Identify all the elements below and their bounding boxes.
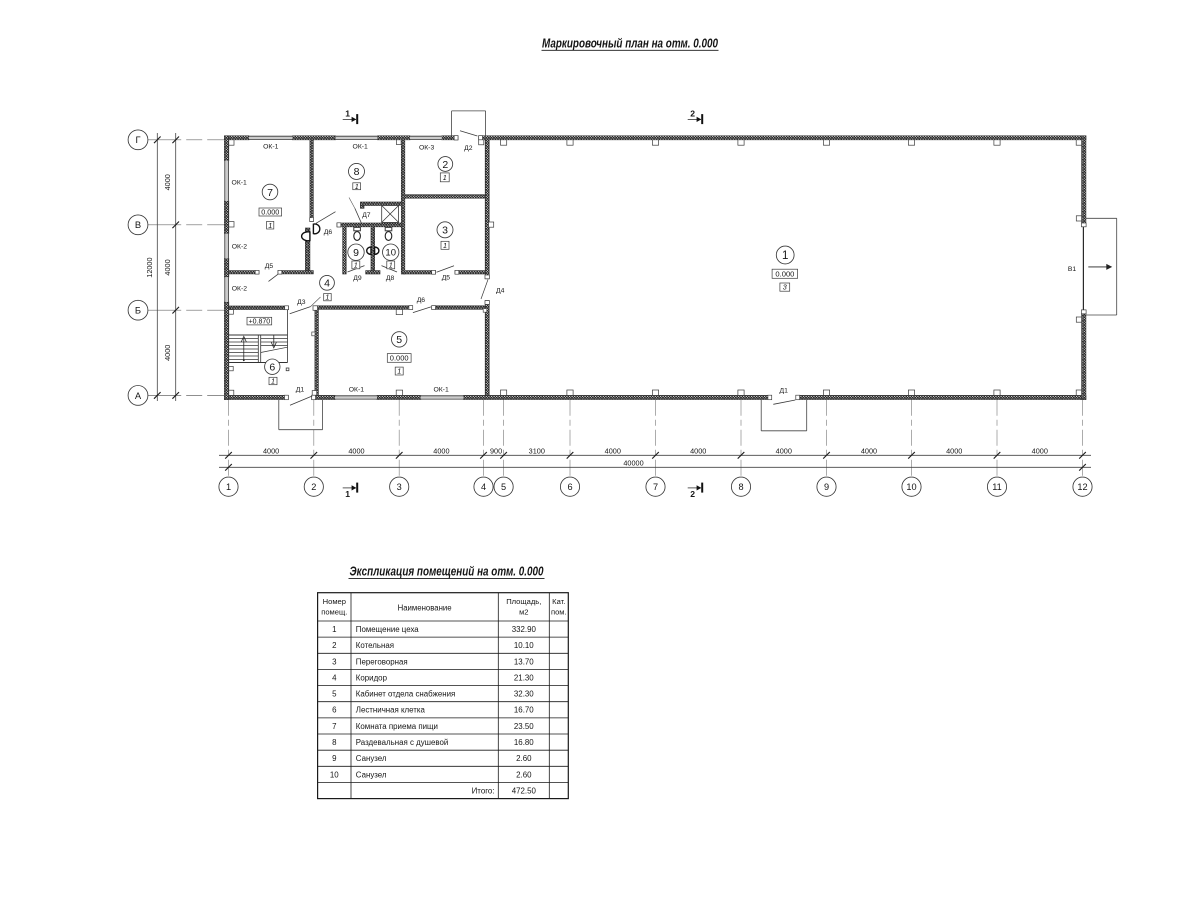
svg-text:Санузел: Санузел <box>356 770 387 779</box>
svg-text:5: 5 <box>332 690 337 699</box>
svg-text:7: 7 <box>267 187 273 199</box>
svg-text:2: 2 <box>690 109 695 119</box>
svg-text:1: 1 <box>389 261 393 270</box>
svg-text:Б: Б <box>135 305 141 316</box>
svg-text:1: 1 <box>332 625 336 634</box>
svg-text:4000: 4000 <box>348 447 364 456</box>
svg-text:1: 1 <box>268 221 272 230</box>
svg-text:2: 2 <box>690 489 695 499</box>
svg-text:Лестничная клетка: Лестничная клетка <box>356 706 426 715</box>
svg-text:Санузел: Санузел <box>356 754 387 763</box>
svg-text:10: 10 <box>330 770 339 779</box>
svg-text:9: 9 <box>824 482 829 492</box>
svg-text:+0.870: +0.870 <box>249 319 271 326</box>
svg-text:7: 7 <box>332 722 336 731</box>
svg-text:Маркировочный план на отм. 0.0: Маркировочный план на отм. 0.000 <box>542 37 718 51</box>
svg-text:Д5: Д5 <box>265 263 274 270</box>
svg-text:1: 1 <box>345 489 350 499</box>
svg-text:4000: 4000 <box>163 174 172 190</box>
svg-text:332.90: 332.90 <box>512 625 537 634</box>
svg-text:16.70: 16.70 <box>514 706 534 715</box>
svg-text:Переговорная: Переговорная <box>356 657 408 666</box>
svg-text:Котельная: Котельная <box>356 641 394 650</box>
svg-text:2: 2 <box>332 641 336 650</box>
svg-text:7: 7 <box>653 482 658 492</box>
svg-text:4000: 4000 <box>1032 447 1048 456</box>
svg-text:ОК-1: ОК-1 <box>263 144 279 151</box>
svg-text:10.10: 10.10 <box>514 641 534 650</box>
svg-text:помещ.: помещ. <box>321 608 347 617</box>
svg-text:9: 9 <box>353 247 359 259</box>
svg-text:Комната приема пищи: Комната приема пищи <box>356 722 438 731</box>
svg-text:21.30: 21.30 <box>514 673 534 682</box>
svg-text:0.000: 0.000 <box>775 269 794 278</box>
svg-text:Д1: Д1 <box>780 387 789 394</box>
svg-text:2: 2 <box>311 482 316 492</box>
svg-text:Наименование: Наименование <box>398 603 452 612</box>
svg-text:9: 9 <box>332 754 337 763</box>
svg-text:12000: 12000 <box>145 257 154 277</box>
svg-text:1: 1 <box>345 109 350 119</box>
svg-text:6: 6 <box>332 706 337 715</box>
svg-text:м2: м2 <box>519 608 528 617</box>
svg-text:4: 4 <box>481 482 486 492</box>
svg-text:Коридор: Коридор <box>356 673 388 682</box>
svg-text:Д5: Д5 <box>442 275 451 282</box>
svg-text:1: 1 <box>782 250 788 262</box>
svg-text:Номер: Номер <box>323 597 346 606</box>
svg-text:В1: В1 <box>1068 266 1077 273</box>
svg-text:Д7: Д7 <box>362 212 371 219</box>
svg-text:Д2: Д2 <box>464 145 473 152</box>
svg-text:4000: 4000 <box>690 447 706 456</box>
svg-text:1: 1 <box>354 261 358 270</box>
svg-text:Итого:: Итого: <box>472 786 495 795</box>
svg-text:6: 6 <box>269 362 275 374</box>
svg-text:4: 4 <box>332 673 337 682</box>
svg-text:900: 900 <box>490 447 502 456</box>
svg-text:12: 12 <box>1077 482 1087 492</box>
svg-text:6: 6 <box>567 482 572 492</box>
svg-text:Помещение цеха: Помещение цеха <box>356 625 420 634</box>
svg-text:А: А <box>135 390 142 401</box>
svg-text:32.30: 32.30 <box>514 690 534 699</box>
svg-text:Д8: Д8 <box>386 275 395 282</box>
svg-text:13.70: 13.70 <box>514 657 534 666</box>
svg-text:4000: 4000 <box>946 447 962 456</box>
svg-text:2.60: 2.60 <box>516 754 532 763</box>
svg-text:ОК-1: ОК-1 <box>433 386 449 393</box>
svg-text:3: 3 <box>442 225 448 237</box>
svg-text:ОК-1: ОК-1 <box>232 180 248 187</box>
svg-text:4: 4 <box>324 278 330 290</box>
svg-text:1: 1 <box>271 377 275 386</box>
svg-text:0.000: 0.000 <box>261 208 279 217</box>
svg-text:2.60: 2.60 <box>516 770 532 779</box>
svg-text:23.50: 23.50 <box>514 722 534 731</box>
svg-text:1: 1 <box>443 241 447 250</box>
svg-text:472.50: 472.50 <box>512 786 537 795</box>
svg-text:1: 1 <box>397 367 401 376</box>
svg-text:Д4: Д4 <box>496 288 505 295</box>
svg-text:8: 8 <box>738 482 743 492</box>
svg-text:1: 1 <box>355 182 359 191</box>
svg-text:ОК-3: ОК-3 <box>419 144 435 151</box>
svg-text:Д6: Д6 <box>324 229 333 236</box>
svg-text:3: 3 <box>332 657 337 666</box>
svg-text:10: 10 <box>385 248 396 259</box>
svg-text:ОК-2: ОК-2 <box>232 286 248 293</box>
svg-text:ОК-1: ОК-1 <box>349 386 365 393</box>
svg-text:пом.: пом. <box>551 608 567 617</box>
svg-text:ОК-1: ОК-1 <box>353 144 369 151</box>
svg-text:0.000: 0.000 <box>390 354 409 363</box>
svg-text:40000: 40000 <box>623 459 643 468</box>
svg-text:ОК-2: ОК-2 <box>232 244 248 251</box>
svg-text:4000: 4000 <box>263 447 279 456</box>
svg-text:Д3: Д3 <box>297 299 306 306</box>
svg-text:Г: Г <box>135 134 140 145</box>
svg-text:4000: 4000 <box>861 447 877 456</box>
svg-text:4000: 4000 <box>163 345 172 361</box>
svg-text:1: 1 <box>325 293 329 302</box>
svg-text:Д9: Д9 <box>353 275 362 282</box>
svg-text:3: 3 <box>397 482 402 492</box>
svg-text:4000: 4000 <box>433 447 449 456</box>
svg-text:3100: 3100 <box>529 447 545 456</box>
svg-text:Раздевальная с душевой: Раздевальная с душевой <box>356 738 448 747</box>
svg-text:Кабинет отдела снабжения: Кабинет отдела снабжения <box>356 690 456 699</box>
svg-text:10: 10 <box>906 482 916 492</box>
svg-text:Площадь,: Площадь, <box>506 597 541 606</box>
svg-text:5: 5 <box>396 334 402 346</box>
svg-text:4000: 4000 <box>163 259 172 275</box>
svg-text:3: 3 <box>783 283 787 292</box>
svg-text:2: 2 <box>442 159 448 171</box>
svg-text:Экспликация помещений на отм.: Экспликация помещений на отм. 0.000 <box>350 564 544 579</box>
svg-text:16.80: 16.80 <box>514 738 534 747</box>
svg-text:Д6: Д6 <box>417 297 426 304</box>
svg-text:4000: 4000 <box>776 447 792 456</box>
svg-text:В: В <box>135 219 141 230</box>
svg-text:1: 1 <box>226 482 231 492</box>
svg-text:8: 8 <box>332 738 337 747</box>
svg-text:Кат.: Кат. <box>552 597 565 606</box>
svg-text:5: 5 <box>501 482 506 492</box>
svg-text:1: 1 <box>443 173 447 182</box>
svg-text:Д1: Д1 <box>296 387 305 394</box>
svg-text:4000: 4000 <box>605 447 621 456</box>
svg-text:11: 11 <box>992 482 1002 492</box>
svg-text:8: 8 <box>354 166 360 178</box>
